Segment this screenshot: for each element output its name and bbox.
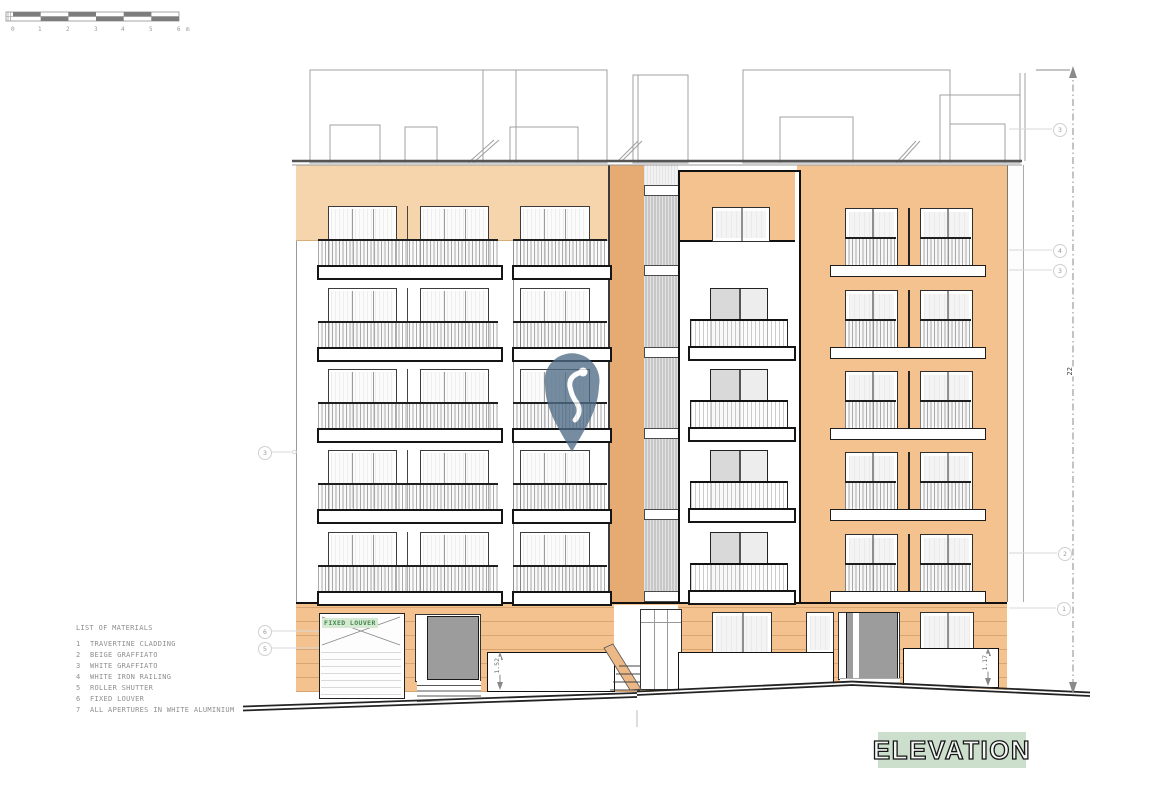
material-item-label: WHITE IRON RAILING: [90, 673, 171, 681]
material-item-num: 3: [76, 662, 81, 670]
material-item-num: 2: [76, 651, 81, 659]
entry-ramp-wall: [604, 644, 641, 690]
callout-right-3a: 3: [1053, 123, 1067, 137]
callout-right-3b: 3: [1053, 264, 1067, 278]
material-item-num: 4: [76, 673, 81, 681]
callout-left-6: 6: [258, 625, 272, 639]
material-item-num: 7: [76, 706, 81, 714]
fixed-louver-label: FIXED LOUVER: [322, 618, 378, 628]
materials-title: LIST OF MATERIALS: [76, 624, 153, 632]
dimension-parapet-left: 1.52: [493, 657, 501, 675]
callout-left-3: 3: [258, 446, 272, 460]
callout-right-1: 1: [1057, 602, 1071, 616]
dimension-overall-height: 22: [1066, 366, 1074, 376]
material-item-label: TRAVERTINE CLADDING: [90, 640, 176, 648]
parapet-dimension-lines: [500, 650, 988, 688]
material-item-label: WHITE GRAFFIATO: [90, 662, 158, 670]
material-item-label: ALL APERTURES IN WHITE ALUMINIUM: [90, 706, 234, 714]
linework-overlay: [0, 0, 1153, 800]
scale-bar: [6, 12, 179, 21]
callout-right-4: 4: [1053, 244, 1067, 258]
elevation-drawing: 3 6 5 3 4 3 2 1 22 1.52 1.17 FIXED LOUVE…: [0, 0, 1153, 800]
dimension-parapet-right: 1.17: [981, 654, 989, 672]
material-item-label: BEIGE GRAFFIATO: [90, 651, 158, 659]
material-item-num: 5: [76, 684, 81, 692]
callout-leaders: [271, 129, 1057, 648]
material-item-label: FIXED LOUVER: [90, 695, 144, 703]
callout-left-5: 5: [258, 642, 272, 656]
street-mask-left: [238, 695, 637, 746]
height-dimension-line: [1036, 66, 1077, 694]
roof-outlines: [310, 70, 1025, 163]
material-item-label: ROLLER SHUTTER: [90, 684, 153, 692]
drawing-title: ELEVATION: [878, 732, 1026, 768]
watermark-pin: [545, 353, 600, 452]
callout-right-2: 2: [1058, 547, 1072, 561]
material-item-num: 1: [76, 640, 81, 648]
material-item-num: 6: [76, 695, 81, 703]
